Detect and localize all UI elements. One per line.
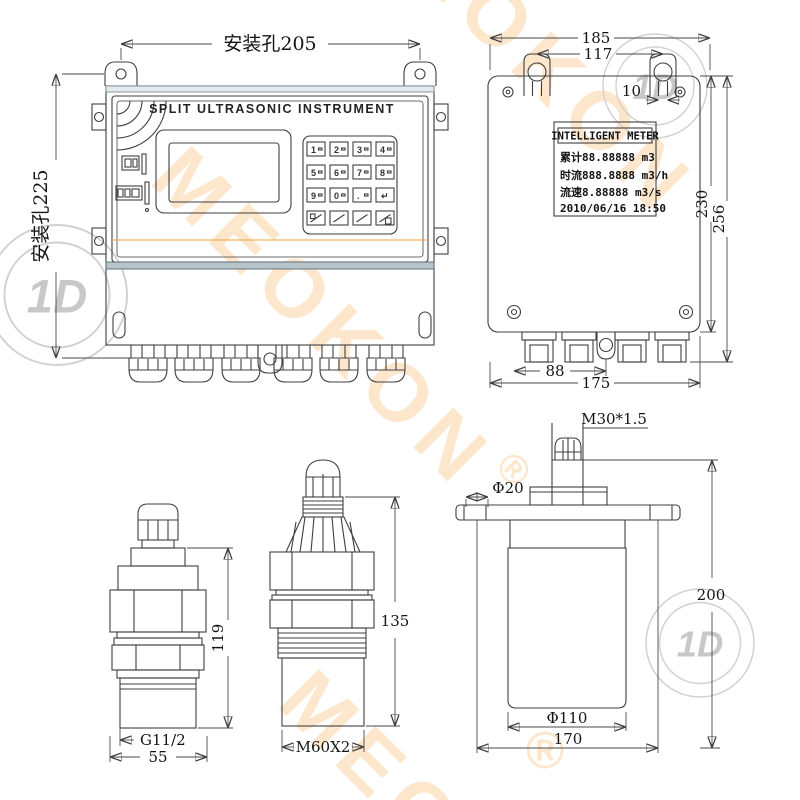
lcd-line-total: 累计88.88888 m3 [560,150,655,164]
dim-height-overall-label: 256 [710,205,728,234]
dim-height-medium-label: 135 [381,612,410,630]
function-key-slash-icon [353,211,371,225]
key-0: 0 [330,188,348,202]
transducer-flanged: M30*1.5 Φ20 Φ110 170 [456,410,725,753]
dim-gland-offset-label: 88 [545,362,564,380]
cabinet-door-bottom-band [106,262,434,269]
technical-drawing-page: 1D MEOKON® MEOKON MEOKON ® 安装孔205 安装孔225 [0,0,800,800]
svg-text:1: 1 [311,145,316,155]
mounting-lug-bottom [258,345,282,373]
key-8: 8 [376,165,394,179]
cabinet-top-band [106,86,434,92]
svg-text:5: 5 [311,168,316,178]
svg-text:6: 6 [334,168,339,178]
key-7: 7 [353,165,371,179]
watermark: MEOKON® MEOKON MEOKON ® [0,0,754,800]
svg-text:↵: ↵ [381,191,389,201]
dim-width-body-label: 175 [582,374,611,392]
mounting-lug-top-right [404,62,436,86]
key-dot: . [353,188,371,202]
corner-screw [680,306,693,319]
vent-slot-right [419,312,431,338]
dim-slot-width-label: 10 [622,82,641,100]
key-9: 9 [307,188,325,202]
svg-text:9: 9 [311,191,316,201]
svg-text:7: 7 [357,168,362,178]
key-4: 4 [376,142,394,156]
function-key-slash-icon [330,211,348,225]
lcd-line-datetime: 2010/06/16 18:50 [560,202,666,215]
key-5: 5 [307,165,325,179]
dim-mounting-width-label: 安装孔205 [223,33,316,55]
svg-text:3: 3 [357,145,362,155]
mounting-lug-top-left [105,62,137,86]
svg-text:4: 4 [380,145,385,155]
lcd-line-velocity: 流速8.88888 m3/s [560,185,661,199]
dim-height-flanged-label: 200 [697,586,726,604]
key-1: 1 [307,142,325,156]
watermark-ring-logo [646,589,754,697]
watermark-ring-logo [0,225,127,365]
lcd-line-flow: 时流888.8888 m3/h [560,168,668,182]
lcd-title: INTELLIGENT METER [551,131,659,143]
corner-screw [508,306,521,319]
thread-label-medium: M60X2 [296,738,351,756]
thread-label-flanged: M30*1.5 [581,410,647,428]
svg-text:.: . [357,191,360,201]
key-3: 3 [353,142,371,156]
svg-text:8: 8 [380,168,385,178]
dim-slot-spacing-label: 117 [584,45,613,63]
key-enter: ↵ [376,188,394,202]
back-lcd-display: INTELLIGENT METER 累计88.88888 m3 时流888.88… [551,122,668,216]
port-icon [122,154,146,174]
back-mounting-lug-bottom [597,332,615,359]
back-cable-glands [522,332,689,362]
dim-height-small-label: 119 [209,624,227,653]
thread-label-small: G11/2 [140,731,186,749]
dim-height-body-label: 230 [693,190,711,219]
dim-body-dia-label: Φ110 [547,709,588,727]
svg-text:2: 2 [334,145,339,155]
dim-flange-width-label: 170 [554,730,583,748]
watermark-brand-text: MEOKON® [135,128,548,541]
dim-width-small-label: 55 [148,748,167,766]
svg-text:0: 0 [334,191,339,201]
keypad: 1 2 3 4 5 6 7 8 9 0 . ↵ [303,136,397,234]
function-key-slash-box-icon [307,211,325,225]
key-6: 6 [330,165,348,179]
dim-mounting-height-label: 安装孔225 [30,169,52,262]
key-2: 2 [330,142,348,156]
function-key-slash-fill-icon [376,211,394,225]
transducer-small: 119 G11/2 55 [110,504,233,766]
front-panel-title: SPLIT ULTRASONIC INSTRUMENT [149,102,395,116]
dim-stem-label: Φ20 [492,479,523,497]
